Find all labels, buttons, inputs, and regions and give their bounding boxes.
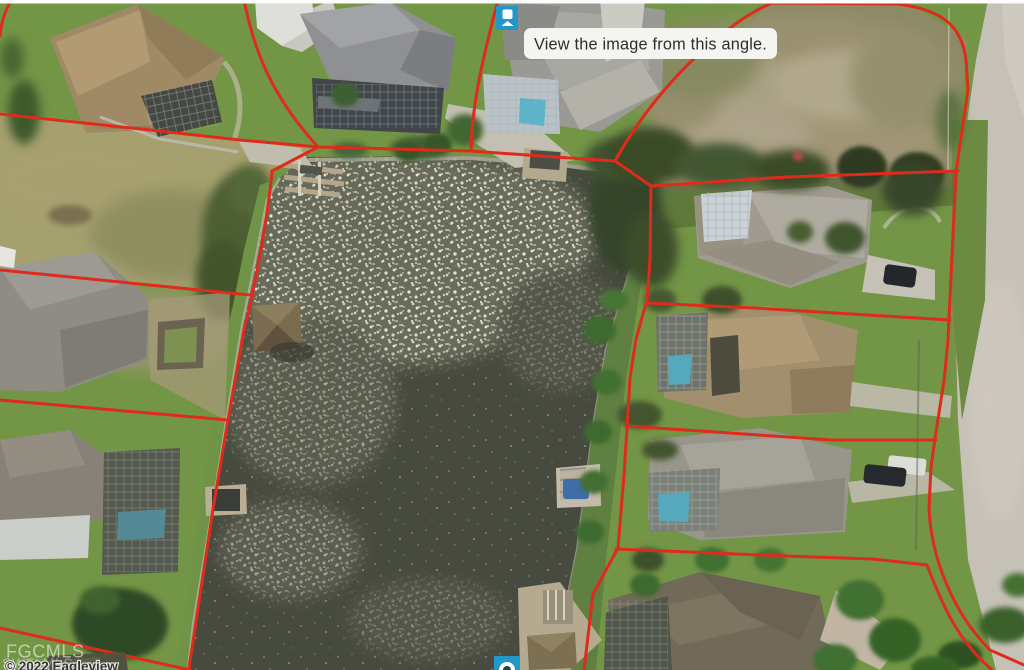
svg-text:© 2022 Eagleview: © 2022 Eagleview [5, 659, 118, 670]
svg-text:View the image from this angle: View the image from this angle. [534, 36, 767, 54]
